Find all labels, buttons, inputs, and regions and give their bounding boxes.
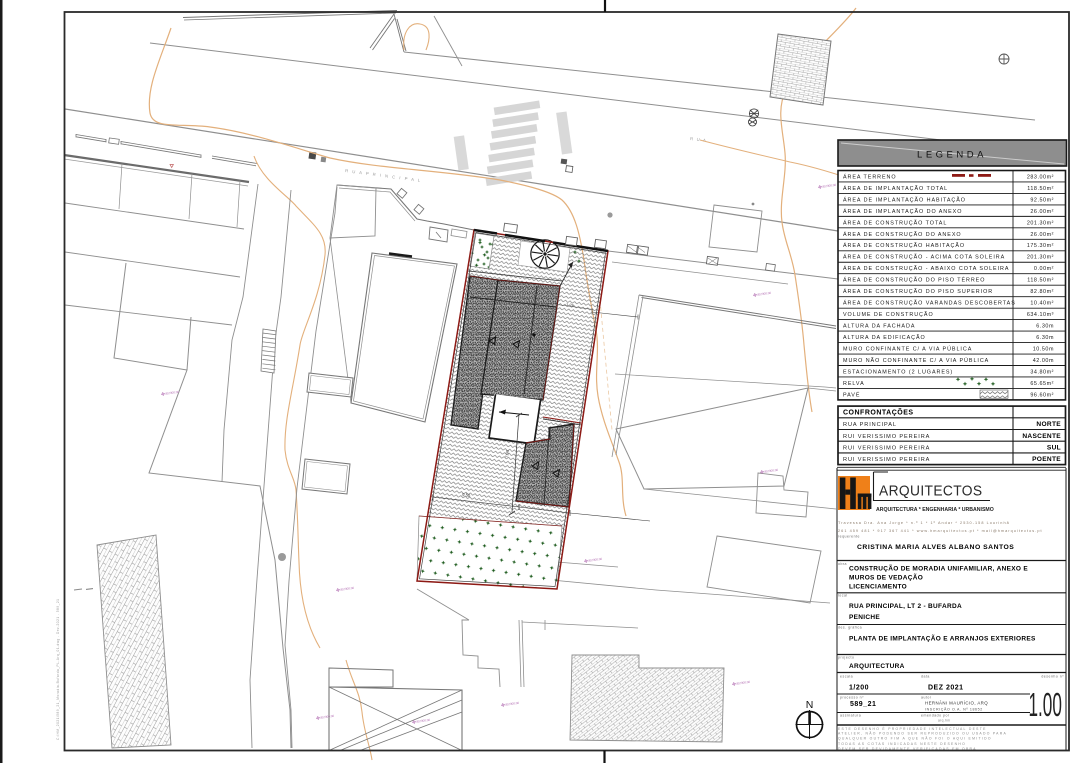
svg-text:NASCENTE: NASCENTE [1022,433,1061,440]
svg-text:ÁREA DE CONSTRUÇÃO TOTAL: ÁREA DE CONSTRUÇÃO TOTAL [843,219,947,226]
svg-text:ARQUITECTOS: ARQUITECTOS [879,483,982,500]
svg-text:arq.hm: arq.hm [938,719,950,723]
svg-text:projecto: projecto [838,656,854,660]
svg-text:ESTACIONAMENTO (2 LUGARES): ESTACIONAMENTO (2 LUGARES) [843,369,953,375]
svg-text:RELVA: RELVA [843,381,865,387]
svg-text:MURO CONFINANTE C/ A VIA PÚBLI: MURO CONFINANTE C/ A VIA PÚBLICA [843,345,972,352]
svg-text:ÁREA DE CONSTRUÇÃO HABITAÇÃO: ÁREA DE CONSTRUÇÃO HABITAÇÃO [843,242,965,249]
svg-text:DEZ 2021: DEZ 2021 [928,685,964,692]
svg-text:INSCRIÇÃO O.A. Nº 18652: INSCRIÇÃO O.A. Nº 18652 [925,707,983,712]
svg-text:HERNÂNI MAURÍCIO, ARQ: HERNÂNI MAURÍCIO, ARQ [925,701,988,706]
svg-text:589_21: 589_21 [850,701,876,708]
svg-text:assinatura: assinatura [840,714,861,718]
svg-text:RUI VERISSIMO PEREIRA: RUI VERISSIMO PEREIRA [843,434,930,440]
svg-text:634.10m³: 634.10m³ [1027,312,1054,318]
svg-text:34.80m²: 34.80m² [1030,369,1054,375]
svg-text:ALTURA DA FACHADA: ALTURA DA FACHADA [843,324,915,330]
svg-text:ÁREA TERRENO: ÁREA TERRENO [843,173,897,180]
svg-text:local: local [838,594,848,598]
svg-text:CRISTINA MARIA ALVES ALBANO SA: CRISTINA MARIA ALVES ALBANO SANTOS [857,544,1014,551]
svg-text:0.00m²: 0.00m² [1034,266,1054,272]
svg-text:ÁREA DE CONSTRUÇÃO - ABAIXO CO: ÁREA DE CONSTRUÇÃO - ABAIXO COTA SOLEIRA [843,265,1009,272]
svg-text:PLANTA DE IMPLANTAÇÃO E ARRANJ: PLANTA DE IMPLANTAÇÃO E ARRANJOS EXTERIO… [849,634,1036,643]
svg-text:ARQUITECTURA * ENGENHARIA * UR: ARQUITECTURA * ENGENHARIA * URBANISMO [876,507,994,513]
svg-text:MUROS DE VEDAÇÃO: MUROS DE VEDAÇÃO [849,573,923,582]
svg-text:65.65m²: 65.65m² [1030,381,1054,387]
svg-text:ÁREA DE CONSTRUÇÃO VARANDAS DE: ÁREA DE CONSTRUÇÃO VARANDAS DESCOBERTAS [843,300,1016,307]
svg-text:Travessa Dra. Ana Jorge * n.º: Travessa Dra. Ana Jorge * n.º 1 * 1º And… [838,521,1010,525]
svg-text:1.00: 1.00 [1029,686,1062,724]
svg-text:1/200: 1/200 [849,685,869,692]
svg-text:ÁREA DE IMPLANTAÇÃO HABITAÇÃO: ÁREA DE IMPLANTAÇÃO HABITAÇÃO [843,196,966,203]
svg-text:TODAS AS COTAS INDICADAS NESTE: TODAS AS COTAS INDICADAS NESTE DESENHO [838,742,966,746]
svg-text:POENTE: POENTE [1032,456,1061,463]
svg-text:PENICHE: PENICHE [849,614,880,621]
svg-text:requerente: requerente [838,535,860,539]
svg-text:LEGENDA: LEGENDA [917,150,987,161]
svg-text:des. gráfica: des. gráfica [838,626,862,630]
svg-text:desenho nº: desenho nº [1041,675,1064,679]
svg-text:ÁREA DE CONSTRUÇÃO - ACIMA COT: ÁREA DE CONSTRUÇÃO - ACIMA COTA SOLEIRA [843,254,1005,261]
svg-text:obra: obra [838,562,847,566]
svg-text:CONSTRUÇÃO DE MORADIA UNIFAMIL: CONSTRUÇÃO DE MORADIA UNIFAMILIAR, ANEXO… [849,564,1028,573]
svg-text:autor: autor [921,696,932,700]
svg-text:MURO NÃO CONFINANTE C/ A VIA P: MURO NÃO CONFINANTE C/ A VIA PÚBLICA [843,357,989,364]
svg-text:9.50: 9.50 [462,492,471,498]
svg-text:201.30m²: 201.30m² [1027,220,1054,226]
svg-text:RUA PRINCIPAL: RUA PRINCIPAL [843,422,897,428]
svg-text:118.50m²: 118.50m² [1027,278,1054,284]
svg-text:26.00m²: 26.00m² [1030,232,1054,238]
svg-text:ATELIER, NÃO PODENDO SER REPRO: ATELIER, NÃO PODENDO SER REPRODUZIDO OU … [838,731,1007,736]
svg-text:data: data [921,675,930,679]
svg-text:RUA PRINCIPAL, LT 2 - BUFARDA: RUA PRINCIPAL, LT 2 - BUFARDA [849,603,962,610]
svg-text:201.30m²: 201.30m² [1027,255,1054,261]
svg-text:82.80m²: 82.80m² [1030,289,1054,295]
svg-text:QUALQUER OUTRO FIM A QUE NÃO F: QUALQUER OUTRO FIM A QUE NÃO FOI O AQUI … [838,735,992,740]
svg-text:261 459 481 * 917 367 441 * ww: 261 459 481 * 917 367 441 * www.hmarquit… [838,529,1043,533]
svg-text:10.40m²: 10.40m² [1030,301,1054,307]
svg-text:10.50m: 10.50m [1033,346,1054,352]
svg-text:283.00m²: 283.00m² [1027,174,1054,180]
svg-text:ÁREA DE CONSTRUÇÃO DO PISO TÉR: ÁREA DE CONSTRUÇÃO DO PISO TÉRREO [843,277,985,284]
svg-text:processo nº: processo nº [840,696,864,700]
svg-text:3.04: 3.04 [537,501,546,507]
svg-text:RUI VERISSIMO PEREIRA: RUI VERISSIMO PEREIRA [843,446,930,452]
svg-text:N: N [806,699,814,711]
svg-text:92.50m²: 92.50m² [1030,197,1054,203]
svg-text:C:\HM_2021\589_21_Moradia.Bufa: C:\HM_2021\589_21_Moradia.Bufarda_PL.Arq… [56,599,60,740]
svg-text:96.60m²: 96.60m² [1030,392,1054,398]
svg-text:ÁREA DE CONSTRUÇÃO DO PISO SUP: ÁREA DE CONSTRUÇÃO DO PISO SUPERIOR [843,288,993,295]
svg-text:ÁREA DE IMPLANTAÇÃO DO ANEXO: ÁREA DE IMPLANTAÇÃO DO ANEXO [843,208,962,215]
svg-text:emendado por: emendado por [921,714,950,718]
svg-text:escala: escala [840,675,853,679]
svg-text:RUI VERISSIMO PEREIRA: RUI VERISSIMO PEREIRA [843,457,930,463]
svg-text:LICENCIAMENTO: LICENCIAMENTO [849,584,907,591]
svg-text:ALTURA DA EDIFICAÇÃO: ALTURA DA EDIFICAÇÃO [843,334,926,341]
svg-text:VOLUME DE CONSTRUÇÃO: VOLUME DE CONSTRUÇÃO [843,311,934,318]
svg-text:PAVÉ: PAVÉ [843,391,860,398]
svg-text:ÁREA DE IMPLANTAÇÃO TOTAL: ÁREA DE IMPLANTAÇÃO TOTAL [843,185,948,192]
svg-text:175.30m²: 175.30m² [1027,243,1054,249]
svg-text:ÁREA DE CONSTRUÇÃO DO ANEXO: ÁREA DE CONSTRUÇÃO DO ANEXO [843,231,962,238]
svg-text:CONFRONTAÇÕES: CONFRONTAÇÕES [843,407,914,416]
svg-text:ARQUITECTURA: ARQUITECTURA [849,663,905,670]
svg-text:26.00m²: 26.00m² [1030,209,1054,215]
svg-text:6.30m: 6.30m [1036,335,1054,341]
svg-text:NORTE: NORTE [1036,421,1061,428]
svg-text:118.50m²: 118.50m² [1027,186,1054,192]
svg-text:42.00m: 42.00m [1033,358,1054,364]
svg-text:6.30m: 6.30m [1036,324,1054,330]
svg-text:SUL: SUL [1047,445,1061,452]
svg-text:ESTE DESENHO É PROPRIEDADE INT: ESTE DESENHO É PROPRIEDADE INTELECTUAL D… [838,726,987,731]
